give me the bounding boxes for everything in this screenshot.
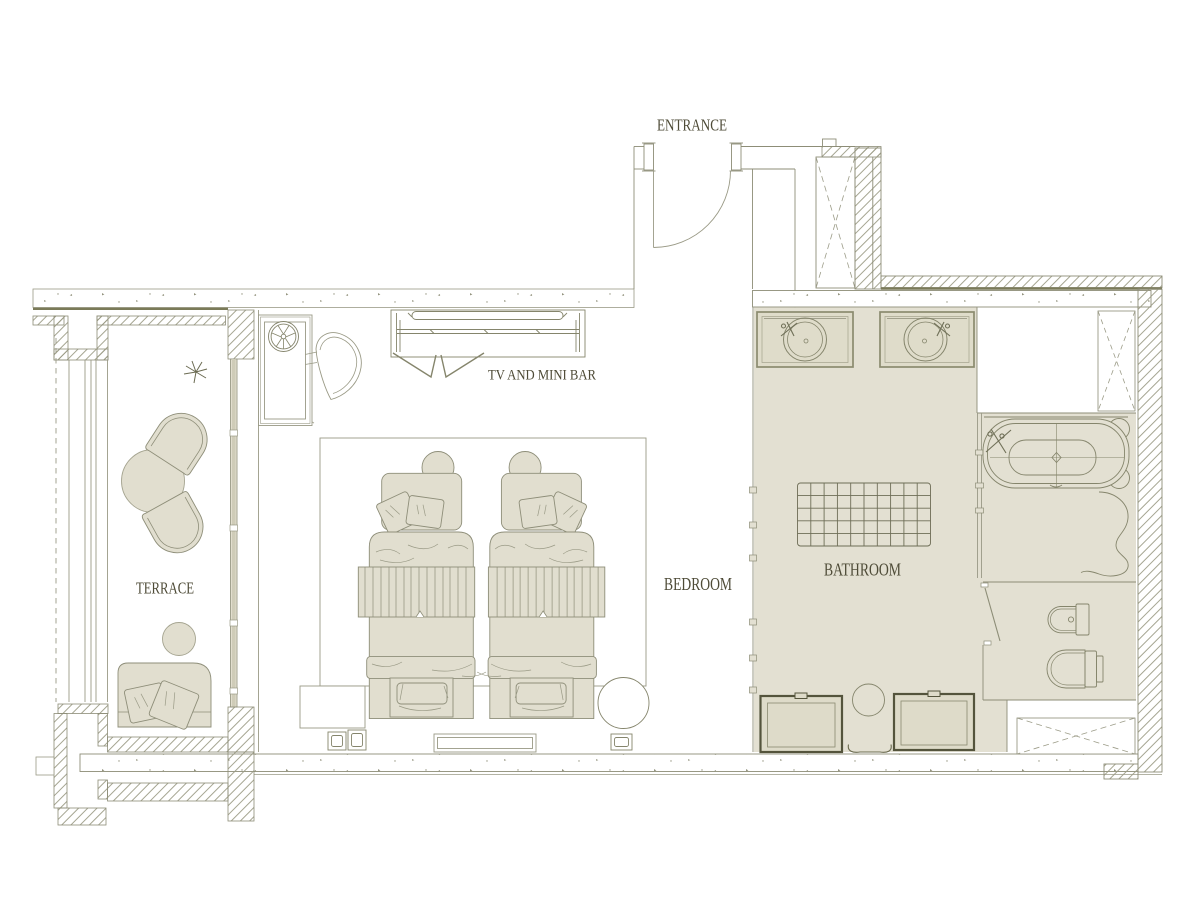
svg-text:ENTRANCE: ENTRANCE (657, 116, 727, 135)
svg-text:BATHROOM: BATHROOM (824, 560, 901, 580)
svg-text:TERRACE: TERRACE (136, 579, 194, 598)
svg-text:BEDROOM: BEDROOM (664, 574, 732, 594)
svg-text:TV AND MINI BAR: TV AND MINI BAR (488, 368, 596, 384)
